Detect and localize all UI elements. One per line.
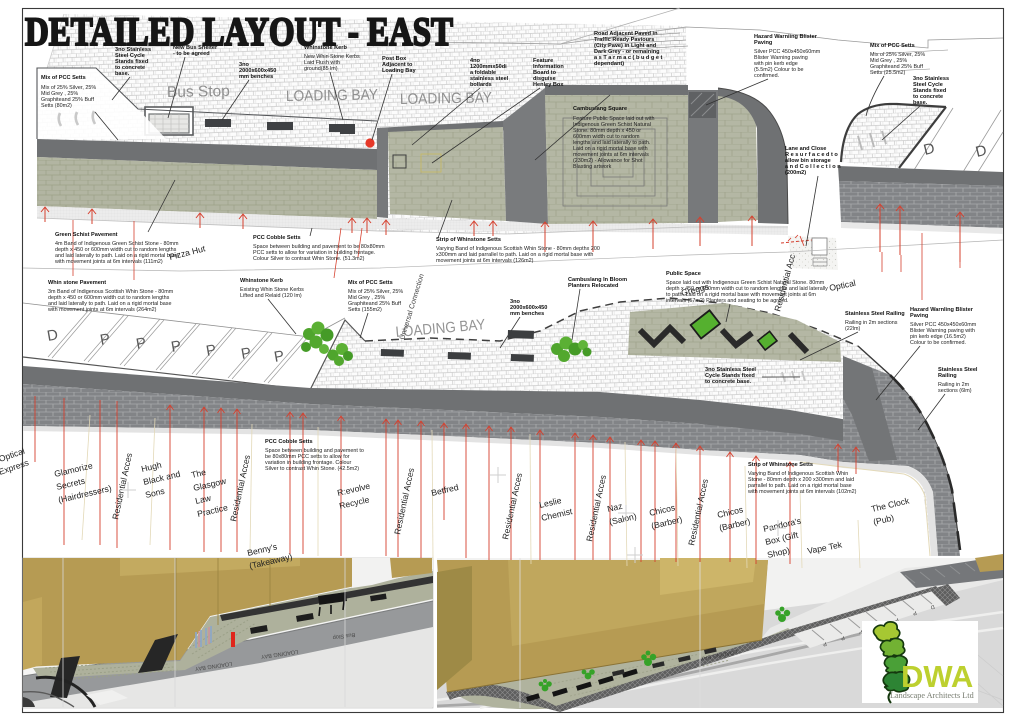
svg-text:Silver to contrast Whin Stone.: Silver to contrast Whin Stone. (42.5m2)	[265, 466, 359, 472]
svg-text:dependant): dependant)	[594, 61, 624, 67]
svg-text:Setts (80m2): Setts (80m2)	[41, 103, 72, 109]
svg-text:Colour to be confirmed.: Colour to be confirmed.	[910, 340, 966, 346]
svg-text:Landscape Architects Ltd: Landscape Architects Ltd	[890, 691, 974, 700]
svg-text:Loading Bay: Loading Bay	[382, 68, 416, 74]
svg-text:to concrete base.: to concrete base.	[705, 379, 751, 385]
svg-text:PCC Cobble Setts: PCC Cobble Setts	[253, 235, 301, 241]
svg-text:Henley Box: Henley Box	[533, 82, 564, 88]
svg-text:with movement joints at 6m int: with movement joints at 6m intervals (11…	[54, 259, 163, 265]
svg-text:Whinstone Kerb: Whinstone Kerb	[240, 278, 283, 284]
svg-text:(22lm): (22lm)	[845, 326, 860, 332]
svg-text:Mix of PCC Setts: Mix of PCC Setts	[348, 280, 393, 286]
svg-text:(200m2): (200m2)	[785, 170, 806, 176]
svg-text:intervals (57m2) Planters and: intervals (57m2) Planters and seating to…	[666, 298, 789, 304]
svg-text:DWA: DWA	[901, 659, 973, 694]
svg-text:base.: base.	[913, 100, 928, 106]
svg-text:mm benches: mm benches	[239, 74, 273, 80]
svg-text:Strip of Whinstone Setts: Strip of Whinstone Setts	[748, 462, 813, 468]
svg-text:bollards: bollards	[470, 82, 492, 88]
svg-text:Whin stone Pavement: Whin stone Pavement	[48, 280, 106, 286]
svg-text:Cambuslang Square: Cambuslang Square	[573, 106, 627, 112]
svg-text:Public Space: Public Space	[666, 271, 701, 277]
svg-text:Bus Stop: Bus Stop	[167, 83, 230, 101]
svg-text:movement joints at 6m interval: movement joints at 6m intervals (126m2)	[436, 258, 534, 264]
svg-text:Green Schist Pavement: Green Schist Pavement	[55, 232, 118, 238]
svg-text:mm benches: mm benches	[510, 311, 544, 317]
svg-text:Paving: Paving	[754, 40, 773, 46]
svg-text:Blasting artwork: Blasting artwork	[573, 164, 612, 170]
svg-text:Colour Silver to contrast Whin: Colour Silver to contrast Whin Stone. (5…	[253, 256, 365, 262]
svg-text:confirmed.: confirmed.	[754, 73, 779, 79]
svg-text:base.: base.	[115, 71, 130, 77]
svg-text:ground(85 lm): ground(85 lm)	[304, 66, 338, 72]
svg-text:with movement joints at 6m int: with movement joints at 6m intervals (10…	[747, 489, 857, 495]
svg-text:Setts (155m2): Setts (155m2)	[348, 307, 382, 313]
svg-text:Planters Relocated: Planters Relocated	[568, 283, 619, 289]
svg-text:Mix of PCC Setts: Mix of PCC Setts	[870, 43, 915, 49]
svg-text:PCC Cobble Setts: PCC Cobble Setts	[265, 439, 313, 445]
svg-text:with movement joints at 6m int: with movement joints at 6m intervals (26…	[47, 307, 157, 313]
svg-text:Stainless Steel Railing: Stainless Steel Railing	[845, 311, 905, 317]
svg-text:DETAILED LAYOUT - EAST: DETAILED LAYOUT - EAST	[25, 9, 453, 54]
svg-text:Paving: Paving	[910, 313, 929, 319]
svg-text:Strip of Whinstone Setts: Strip of Whinstone Setts	[436, 237, 501, 243]
svg-text:LOADING BAY: LOADING BAY	[286, 86, 378, 105]
svg-text:LOADING BAY: LOADING BAY	[400, 89, 492, 108]
svg-text:sections (6lm): sections (6lm)	[938, 388, 972, 394]
svg-text:Mix of PCC Setts: Mix of PCC Setts	[41, 75, 86, 81]
svg-text:Lifted and Relaid (120 lm): Lifted and Relaid (120 lm)	[240, 293, 302, 299]
svg-text:Railing: Railing	[938, 373, 957, 379]
